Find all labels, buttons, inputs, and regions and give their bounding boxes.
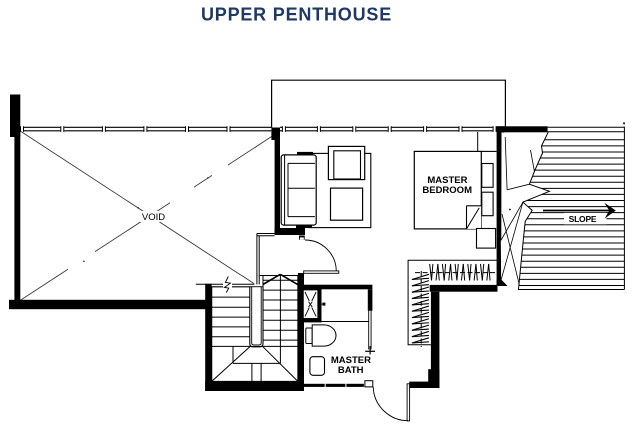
svg-text:UPPER PENTHOUSE: UPPER PENTHOUSE — [201, 5, 392, 25]
svg-text:BATH: BATH — [338, 365, 364, 376]
svg-text:BEDROOM: BEDROOM — [422, 185, 472, 196]
svg-text:SLOPE: SLOPE — [569, 214, 597, 224]
svg-text:VOID: VOID — [142, 212, 165, 223]
